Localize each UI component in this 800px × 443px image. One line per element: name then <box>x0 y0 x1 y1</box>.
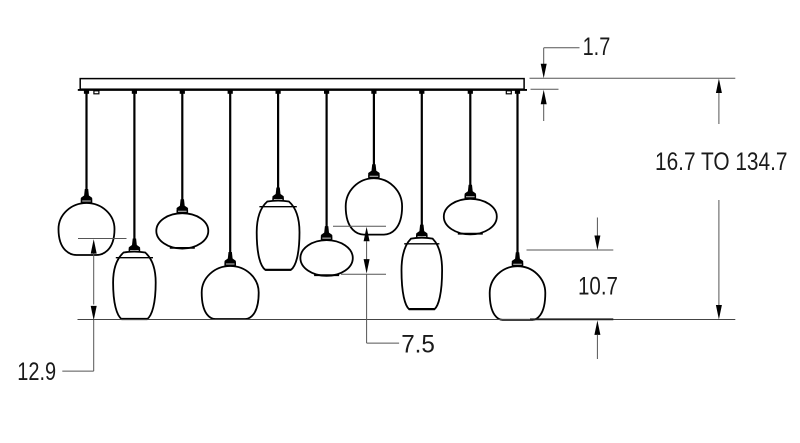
svg-text:7.5: 7.5 <box>401 330 435 358</box>
svg-text:10.7: 10.7 <box>578 272 618 300</box>
svg-text:12.9: 12.9 <box>17 358 56 386</box>
svg-text:16.7 TO 134.7: 16.7 TO 134.7 <box>655 148 788 176</box>
svg-text:1.7: 1.7 <box>583 33 611 61</box>
